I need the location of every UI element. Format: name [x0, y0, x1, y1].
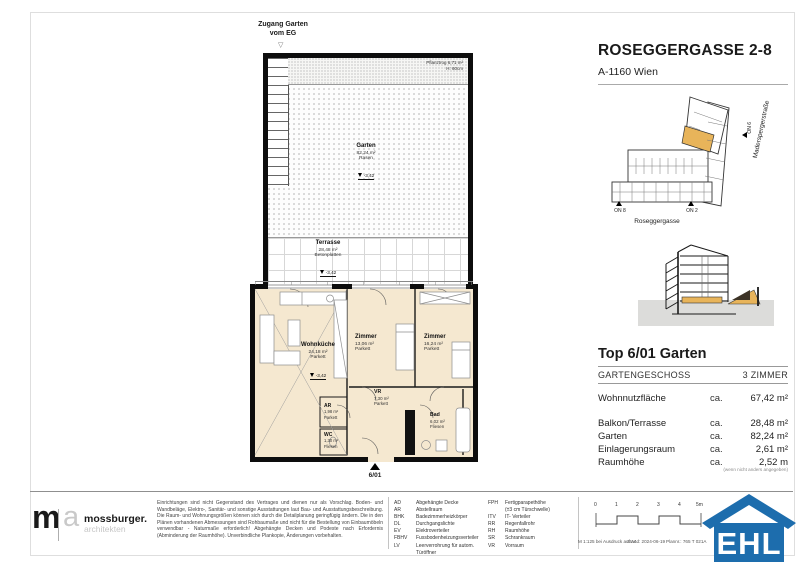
unit-note: (wenn nicht anders angegeben) [668, 467, 788, 472]
print-date: Stand: 2024-06-19 [627, 539, 665, 544]
garden-level-marker: -3,42 [358, 173, 374, 180]
apartment-plan-drawing [250, 284, 478, 462]
street-label-roseggergasse: Roseggergasse [612, 218, 702, 225]
disclaimer-text: Einrichtungen sind nicht Gegenstand des … [157, 500, 383, 540]
level-icon [320, 270, 324, 274]
planter-label: Pflanztrog 6,71 m² H: 60cm [355, 60, 463, 71]
bed [396, 324, 414, 370]
slope-hatch [732, 290, 750, 300]
project-address: A-1160 Wien [598, 66, 658, 78]
architect-sub: architekten [84, 524, 126, 534]
terrace-level-marker: -3,42 [320, 270, 336, 277]
logo-divider [58, 509, 59, 541]
terrace-surface: Betonplatten [300, 253, 356, 259]
washbasin-icon [422, 441, 431, 450]
garden-label: Garten 82,24 m² Rasen -3,42 [338, 143, 394, 183]
room-label-wc: WC 1,30 m² Fliesen [324, 432, 348, 449]
on2-arrow-icon [688, 201, 694, 206]
info-row: Balkon/Terrasse ca. 28,48 m² [598, 418, 788, 429]
unit-title-divider [598, 366, 788, 367]
unit-title: Top 6/01 Garten [598, 346, 707, 362]
sofa [260, 315, 274, 363]
unit-floor-row: GARTENGESCHOSS 3 ZIMMER [598, 370, 788, 380]
room-label-bad: Bad 6,02 m² Fliesen [430, 412, 460, 430]
print-plan-number: Plannr.: 765 T 021A [666, 539, 706, 544]
entry-arrow-icon [370, 463, 380, 470]
room-label-wohnkueche: Wohnküche 24,18 m² Parkett -3,42 [288, 342, 348, 383]
footer-divider [30, 491, 793, 492]
info-row: Einlagerungsraum ca. 2,61 m² [598, 444, 788, 455]
access-label-line2: vom EG [270, 30, 296, 37]
room-label-vr: VR 7,30 m² Parkett [374, 389, 404, 407]
room-label-ar: AR 1,98 m² Parkett [324, 403, 348, 420]
entry-marker-label: 6/01 [362, 472, 388, 479]
garden-stairs [268, 58, 289, 186]
garden-surface: Rasen [338, 156, 394, 162]
planter-line2: H: 60cm [446, 66, 463, 71]
site-plan [588, 88, 763, 223]
dimension-ticks [255, 281, 473, 285]
terrace-label: Terrasse 28,48 m² Betonplatten -3,42 [300, 240, 356, 280]
ehl-logo: EHL [702, 494, 796, 564]
room-label-zimmer1: Zimmer 13,06 m² Parkett [355, 334, 395, 353]
logo-a: a [63, 501, 79, 534]
level-icon [358, 173, 362, 177]
scale-bar-icon [593, 510, 713, 530]
info-row: Wohnnutzfläche ca. 67,42 m² [598, 393, 788, 404]
highlighted-floor [682, 297, 722, 303]
access-arrow-icon: ▽ [278, 41, 283, 49]
garden-name: Garten [338, 143, 394, 151]
room-label-zimmer2: Zimmer 16,24 m² Parkett [424, 334, 464, 353]
legend-left: ADAbgehängte Decke ARAbstellraum BHKBade… [394, 500, 486, 557]
planter-line1: Pflanztrog 6,71 m² [426, 60, 463, 65]
marker-on2: ON 2 [678, 208, 706, 214]
garden-access-label: Zugang Garten vom EG [245, 20, 321, 38]
on8-arrow-icon [616, 201, 622, 206]
building-section [636, 240, 776, 335]
plumbing-wall [405, 410, 415, 455]
marker-on6: ON 6 [747, 122, 753, 134]
project-title: ROSEGGERGASSE 2-8 [598, 42, 790, 60]
unit-floor-divider [598, 383, 788, 384]
header-divider [598, 84, 788, 85]
terrace-name: Terrasse [300, 240, 356, 248]
wohnkueche-level-marker: -3,42 [310, 373, 326, 380]
level-icon [310, 373, 314, 377]
logo-m: m [32, 499, 60, 536]
architect-logo: m a mossburger. architekten [32, 503, 147, 549]
access-label-line1: Zugang Garten [258, 21, 308, 28]
marker-on8: ON 8 [606, 208, 634, 214]
unit-room-count: 3 ZIMMER [743, 370, 788, 380]
washbasin [436, 440, 447, 451]
ehl-text: EHL [717, 526, 782, 561]
unit-floor: GARTENGESCHOSS [598, 370, 743, 380]
footer-vdivider [388, 497, 389, 549]
info-row: Garten ca. 82,24 m² [598, 431, 788, 442]
legend-right: FPHFertigparapethöhe (±3 cm Türschwelle)… [488, 500, 572, 550]
scale-bar: 0 1 2 3 4 5m [593, 502, 713, 532]
plan-sheet: Zugang Garten vom EG ▽ Pflanztrog 6,71 m… [0, 0, 800, 566]
